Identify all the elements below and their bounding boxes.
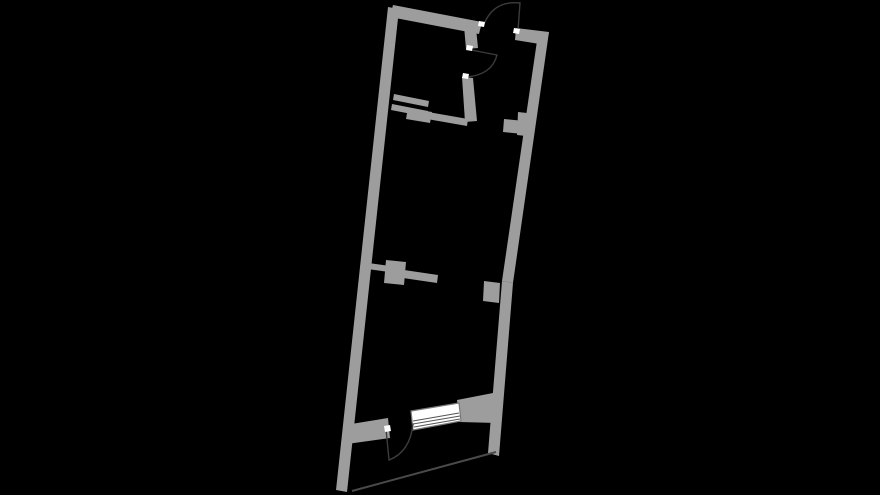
hallway-stub-vertical — [517, 112, 527, 136]
bathroom-door-jamb-top — [466, 45, 473, 51]
right-wall-stub — [483, 281, 500, 303]
entrance-door-jamb-left — [478, 21, 485, 27]
bathroom-east-wall-upper — [464, 26, 478, 49]
partition-pier — [384, 260, 406, 285]
bathroom-door-jamb-bottom — [462, 73, 469, 79]
floor-plan-canvas — [0, 0, 880, 495]
balcony-door-jamb-hinge — [384, 425, 391, 432]
floor-plan — [0, 0, 880, 495]
entrance-door-jamb-hinge — [513, 28, 520, 34]
